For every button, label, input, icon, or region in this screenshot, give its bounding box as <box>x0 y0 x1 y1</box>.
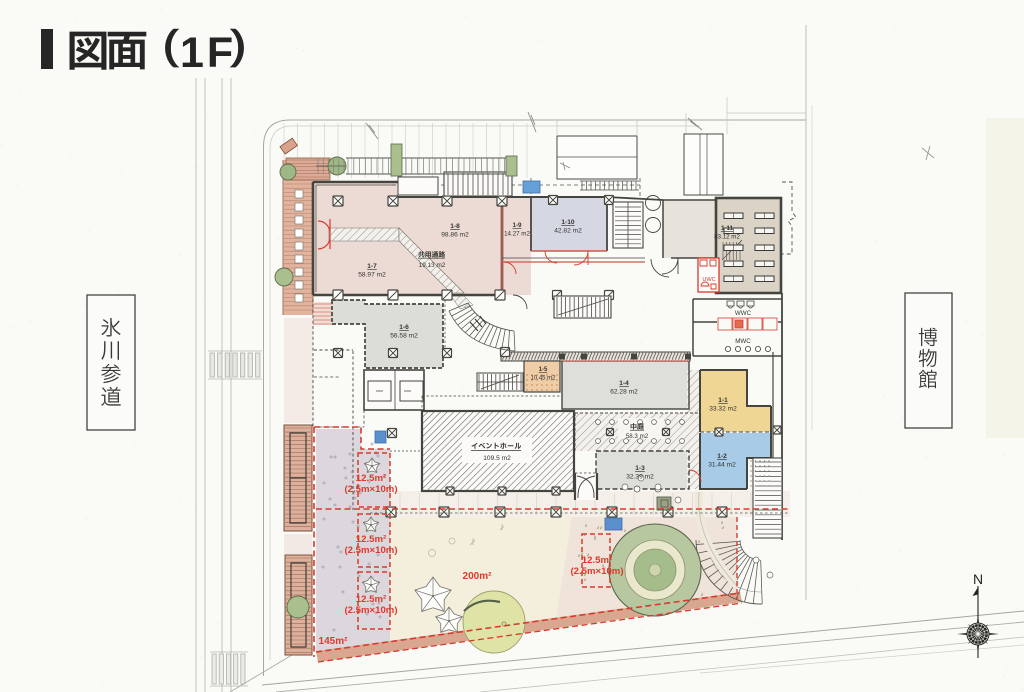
svg-text:WWC: WWC <box>735 310 752 317</box>
svg-text:1-8: 1-8 <box>450 223 460 230</box>
svg-text:33.32 m2: 33.32 m2 <box>709 406 737 413</box>
svg-text:N: N <box>973 571 983 587</box>
svg-text:1-5: 1-5 <box>539 367 548 373</box>
svg-text:98.86 m2: 98.86 m2 <box>441 232 469 239</box>
svg-text:1-4: 1-4 <box>619 380 629 387</box>
svg-text:58.97 m2: 58.97 m2 <box>358 272 386 279</box>
svg-text:1-3: 1-3 <box>635 465 645 472</box>
svg-text:12.5m²: 12.5m² <box>582 555 612 566</box>
svg-text:14.27 m2: 14.27 m2 <box>504 231 530 238</box>
svg-text:109.5 m2: 109.5 m2 <box>483 455 511 462</box>
svg-text:12.5m²: 12.5m² <box>356 534 386 545</box>
svg-text:1-1: 1-1 <box>718 397 728 404</box>
svg-text:1-9: 1-9 <box>513 222 523 229</box>
svg-text:83.12 m2: 83.12 m2 <box>714 234 740 241</box>
svg-text:1-6: 1-6 <box>399 324 409 331</box>
svg-text:42.82 m2: 42.82 m2 <box>554 228 582 235</box>
svg-text:MWC: MWC <box>735 338 751 345</box>
svg-text:62.28 m2: 62.28 m2 <box>610 389 638 396</box>
svg-text:1-11: 1-11 <box>721 225 734 232</box>
svg-text:19.13 m2: 19.13 m2 <box>419 262 446 269</box>
svg-text:1-7: 1-7 <box>367 263 377 270</box>
svg-text:1-2: 1-2 <box>717 453 727 460</box>
svg-text:(2.5m×10m): (2.5m×10m) <box>344 484 397 495</box>
svg-text:1-10: 1-10 <box>561 219 575 226</box>
svg-text:58.3 m2: 58.3 m2 <box>626 433 649 440</box>
svg-text:200m²: 200m² <box>463 571 493 582</box>
svg-text:12.5m²: 12.5m² <box>356 594 386 605</box>
svg-text:56.58 m2: 56.58 m2 <box>390 333 418 340</box>
svg-text:32.39 m2: 32.39 m2 <box>626 474 654 481</box>
svg-text:1F: 1F <box>180 29 236 77</box>
svg-text:12.5m²: 12.5m² <box>356 473 386 484</box>
svg-text:31.44 m2: 31.44 m2 <box>708 462 736 469</box>
svg-text:145m²: 145m² <box>319 636 349 647</box>
svg-text:10.45 m2: 10.45 m2 <box>530 376 556 382</box>
svg-text:(2.5m×10m): (2.5m×10m) <box>570 566 623 577</box>
svg-text:(2.5m×10m): (2.5m×10m) <box>344 545 397 556</box>
svg-text:(2.5m×10m): (2.5m×10m) <box>344 605 397 616</box>
svg-text:UWC: UWC <box>702 277 715 283</box>
